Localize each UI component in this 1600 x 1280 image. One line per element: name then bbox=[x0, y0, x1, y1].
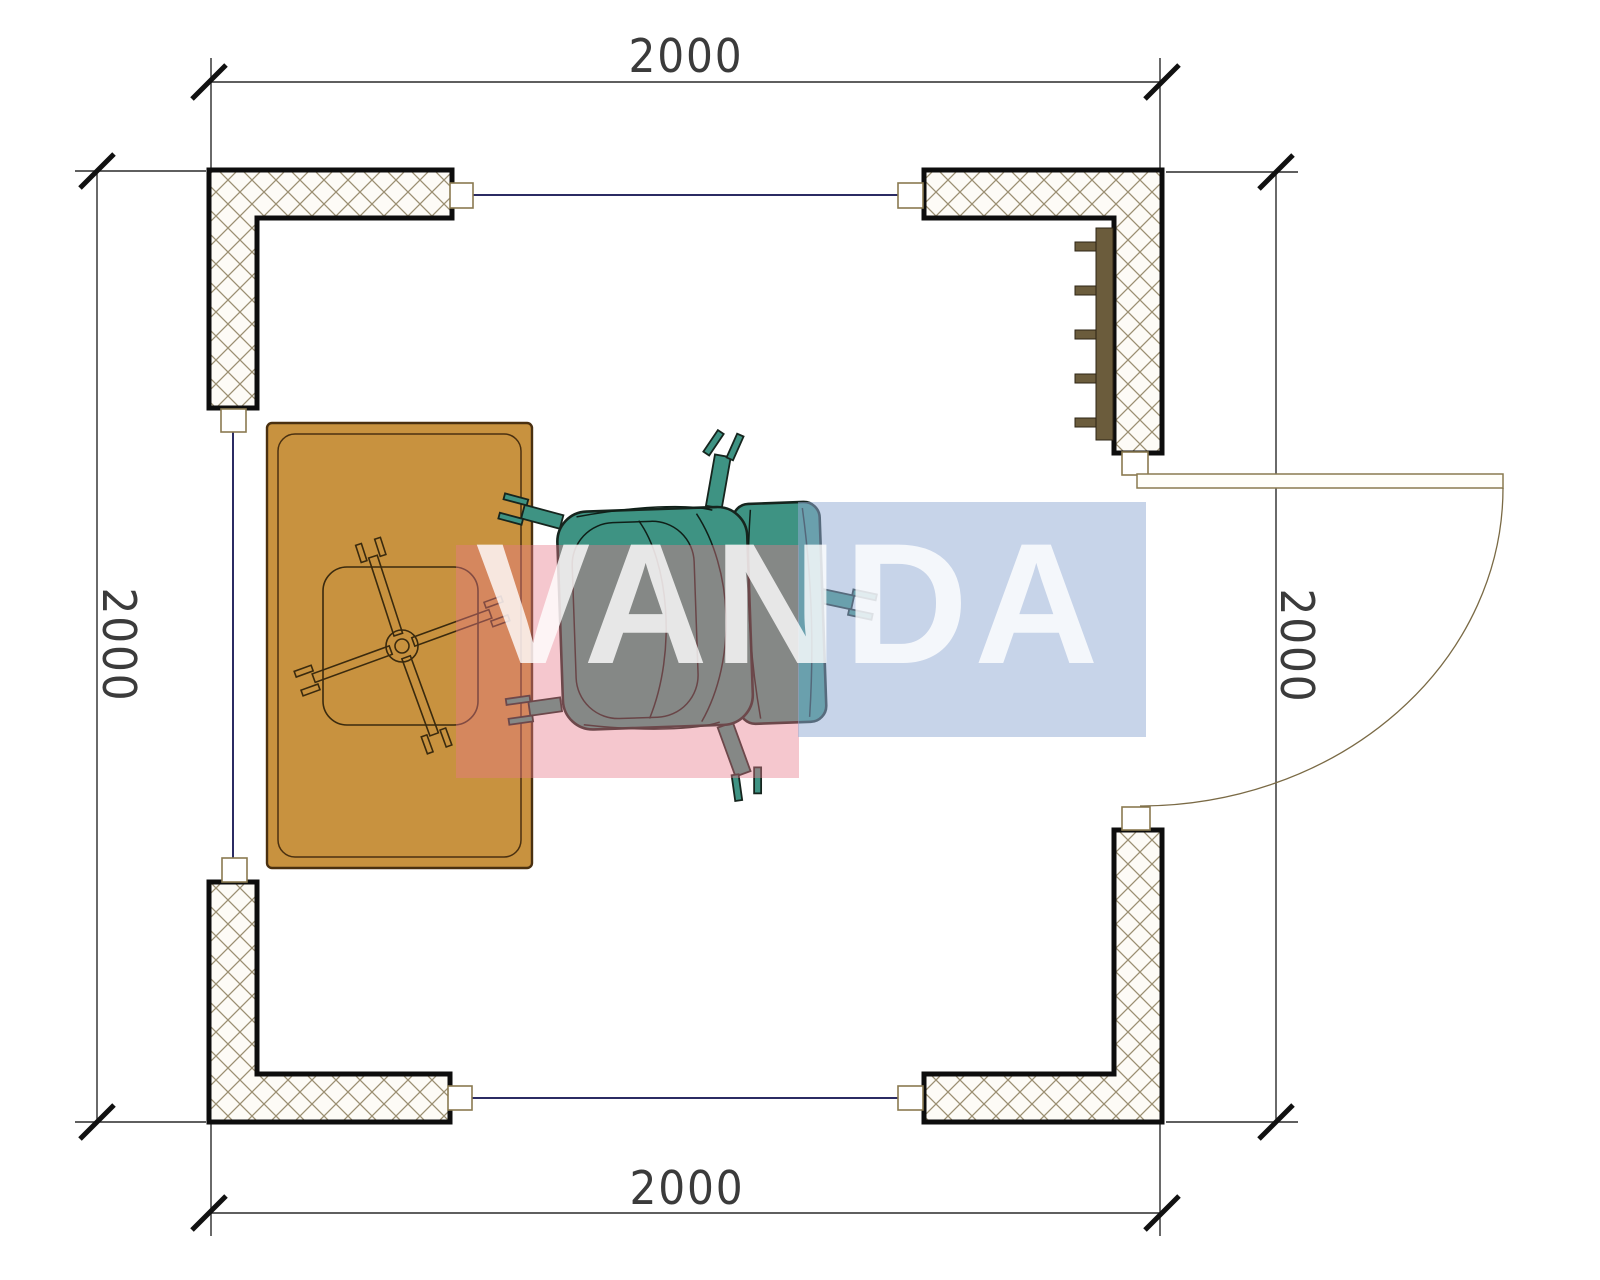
wall-cap bbox=[450, 183, 473, 208]
wall-bottom-left bbox=[209, 882, 450, 1122]
dimension-label-left: 2000 bbox=[92, 587, 146, 702]
chair-leg bbox=[694, 428, 744, 510]
dimension-label-right: 2000 bbox=[1270, 588, 1324, 703]
radiator-fin bbox=[1075, 286, 1096, 295]
dimension-label-bottom: 2000 bbox=[629, 1161, 744, 1215]
floor-plan-canvas: VANDA 2000 2000 2000 2000 bbox=[0, 0, 1600, 1280]
wall-cap bbox=[222, 858, 247, 882]
wall-cap bbox=[898, 183, 923, 208]
wall-top-left bbox=[209, 170, 452, 408]
door-jamb-cap-bottom bbox=[1122, 807, 1150, 830]
radiator-fin bbox=[1075, 374, 1096, 383]
dimension-label-top: 2000 bbox=[628, 29, 743, 83]
radiator-fin bbox=[1075, 242, 1096, 251]
wall-cap bbox=[448, 1086, 472, 1110]
wall-cap bbox=[898, 1086, 923, 1110]
door-jamb-cap-top bbox=[1122, 452, 1148, 475]
wall-cap bbox=[221, 409, 246, 432]
door-leaf bbox=[1137, 474, 1503, 488]
radiator-fin bbox=[1075, 418, 1096, 427]
radiator bbox=[1075, 228, 1113, 440]
wall-bottom-right bbox=[924, 830, 1162, 1122]
watermark-text: VANDA bbox=[430, 518, 1150, 690]
wall-top-right bbox=[924, 170, 1162, 453]
radiator-fin bbox=[1075, 330, 1096, 339]
